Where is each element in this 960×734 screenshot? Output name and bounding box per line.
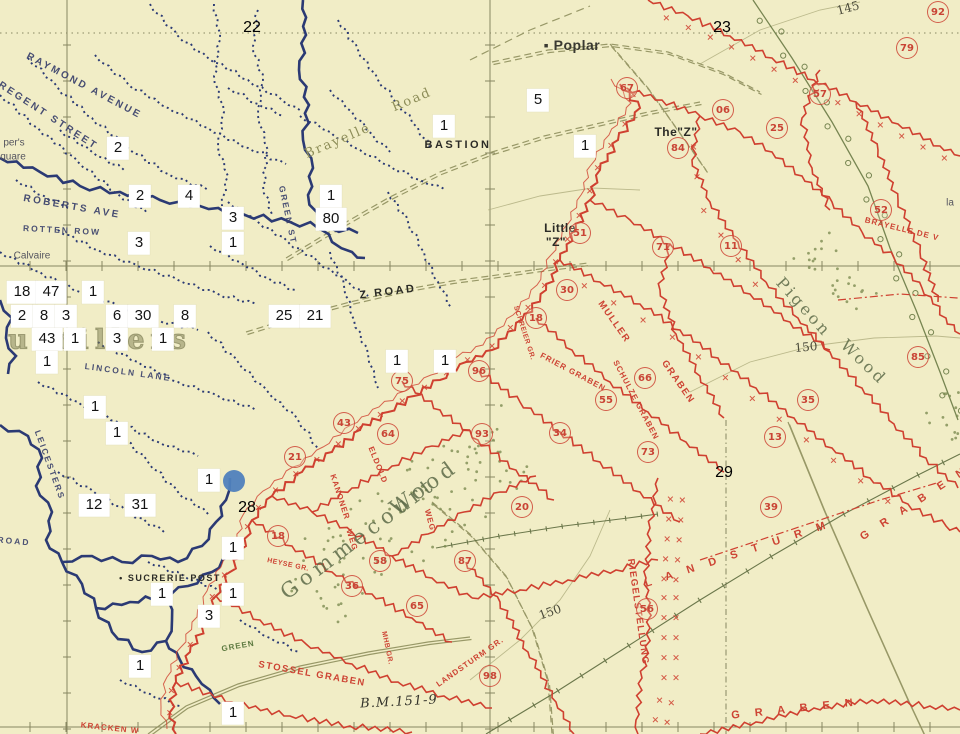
annotation-count-box[interactable]: 1 bbox=[574, 135, 596, 158]
trench-post-number: 11 bbox=[720, 235, 742, 257]
trench-post-number: 71 bbox=[652, 236, 674, 258]
annotation-count-box[interactable]: 31 bbox=[125, 494, 156, 517]
grid-square-number: 23 bbox=[713, 19, 731, 37]
trench-post-number: 92 bbox=[927, 1, 949, 23]
annotation-count-box[interactable]: 2 bbox=[129, 185, 151, 208]
trench-post-number: 87 bbox=[454, 550, 476, 572]
grid-square-number: 28 bbox=[238, 499, 256, 517]
annotation-count-box[interactable]: 1 bbox=[64, 328, 86, 351]
annotation-count-box[interactable]: 1 bbox=[84, 396, 106, 419]
trench-post-number: 98 bbox=[479, 665, 501, 687]
place-label: Calvaire bbox=[14, 251, 51, 262]
annotation-count-box[interactable]: 1 bbox=[198, 469, 220, 492]
trench-post-number: 67 bbox=[616, 77, 638, 99]
trench-post-number: 43 bbox=[333, 412, 355, 434]
annotation-count-box[interactable]: 3 bbox=[198, 605, 220, 628]
trench-post-number: 52 bbox=[870, 199, 892, 221]
annotation-count-box[interactable]: 3 bbox=[128, 232, 150, 255]
annotation-count-box[interactable]: 2 bbox=[107, 137, 129, 160]
annotation-count-box[interactable]: 5 bbox=[527, 89, 549, 112]
trench-post-number: 51 bbox=[569, 222, 591, 244]
trench-post-number: 30 bbox=[556, 279, 578, 301]
trench-post-number: 65 bbox=[406, 595, 428, 617]
place-label: "Z" bbox=[546, 235, 566, 249]
annotation-count-box[interactable]: 2 bbox=[11, 305, 33, 328]
annotation-count-box[interactable]: 1 bbox=[434, 350, 456, 373]
trench-post-number: 18 bbox=[525, 307, 547, 329]
trench-post-number: 20 bbox=[511, 496, 533, 518]
annotation-count-box[interactable]: 3 bbox=[106, 328, 128, 351]
place-label: la bbox=[946, 198, 954, 209]
annotation-count-box[interactable]: 1 bbox=[129, 655, 151, 678]
annotation-count-box[interactable]: 3 bbox=[55, 305, 77, 328]
trench-post-number: 21 bbox=[284, 446, 306, 468]
annotation-count-box[interactable]: 80 bbox=[316, 208, 347, 231]
annotation-count-box[interactable]: 21 bbox=[300, 305, 331, 328]
place-label: quare bbox=[0, 152, 26, 163]
place-label: • SUCRERIE POST bbox=[119, 573, 221, 583]
trench-post-number: 36 bbox=[341, 575, 363, 597]
annotation-count-box[interactable]: 8 bbox=[174, 305, 196, 328]
annotation-count-box[interactable]: 3 bbox=[222, 207, 244, 230]
trench-post-number: 85 bbox=[907, 346, 929, 368]
annotation-count-box[interactable]: 4 bbox=[178, 185, 200, 208]
annotation-count-box[interactable]: 1 bbox=[433, 115, 455, 138]
annotation-count-box[interactable]: 1 bbox=[222, 702, 244, 725]
trench-post-number: 79 bbox=[896, 37, 918, 59]
place-label: per's bbox=[3, 138, 24, 149]
annotation-count-box[interactable]: 43 bbox=[32, 328, 63, 351]
annotation-count-box[interactable]: 12 bbox=[79, 494, 110, 517]
annotation-count-box[interactable]: 1 bbox=[386, 350, 408, 373]
trench-post-number: 39 bbox=[760, 496, 782, 518]
annotation-count-box[interactable]: 1 bbox=[222, 583, 244, 606]
trench-post-number: 84 bbox=[667, 137, 689, 159]
trench-post-number: 35 bbox=[797, 389, 819, 411]
trench-post-number: 55 bbox=[595, 389, 617, 411]
place-label: 150 bbox=[794, 339, 818, 355]
annotation-count-box[interactable]: 1 bbox=[106, 422, 128, 445]
annotation-count-box[interactable]: 1 bbox=[320, 185, 342, 208]
annotation-count-box[interactable]: 1 bbox=[36, 351, 58, 374]
trench-post-number: 06 bbox=[712, 99, 734, 121]
annotation-count-box[interactable]: 1 bbox=[82, 281, 104, 304]
annotation-count-box[interactable]: 25 bbox=[269, 305, 300, 328]
trench-post-number: 13 bbox=[764, 426, 786, 448]
place-label: BASTION bbox=[425, 139, 492, 151]
trench-post-number: 18 bbox=[267, 525, 289, 547]
trench-post-number: 73 bbox=[637, 441, 659, 463]
annotation-count-box[interactable]: 6 bbox=[106, 305, 128, 328]
annotation-count-box[interactable]: 1 bbox=[151, 583, 173, 606]
annotation-count-box[interactable]: 30 bbox=[128, 305, 159, 328]
trench-post-number: 66 bbox=[634, 367, 656, 389]
annotation-count-box[interactable]: 18 bbox=[7, 281, 38, 304]
trench-post-number: 57 bbox=[809, 83, 831, 105]
trench-post-number: 96 bbox=[468, 360, 490, 382]
map-marker-dot[interactable] bbox=[223, 470, 245, 492]
trench-post-number: 58 bbox=[369, 550, 391, 572]
place-label: ▪ Poplar bbox=[544, 37, 600, 53]
trench-post-number: 64 bbox=[377, 423, 399, 445]
annotation-count-box[interactable]: 1 bbox=[222, 232, 244, 255]
trench-post-number: 25 bbox=[766, 117, 788, 139]
annotation-count-box[interactable]: 1 bbox=[222, 537, 244, 560]
trench-post-number: 75 bbox=[391, 370, 413, 392]
trench-post-number: 56 bbox=[636, 598, 658, 620]
trench-post-number: 34 bbox=[549, 422, 571, 444]
annotation-count-box[interactable]: 47 bbox=[36, 281, 67, 304]
trench-map: 22232829RAYMOND AVENUEREGENT STREETROBER… bbox=[0, 0, 960, 734]
annotation-count-box[interactable]: 1 bbox=[152, 328, 174, 351]
grid-square-number: 29 bbox=[715, 464, 733, 482]
annotation-count-box[interactable]: 8 bbox=[33, 305, 55, 328]
trench-post-number: 93 bbox=[471, 423, 493, 445]
grid-square-number: 22 bbox=[243, 19, 261, 37]
